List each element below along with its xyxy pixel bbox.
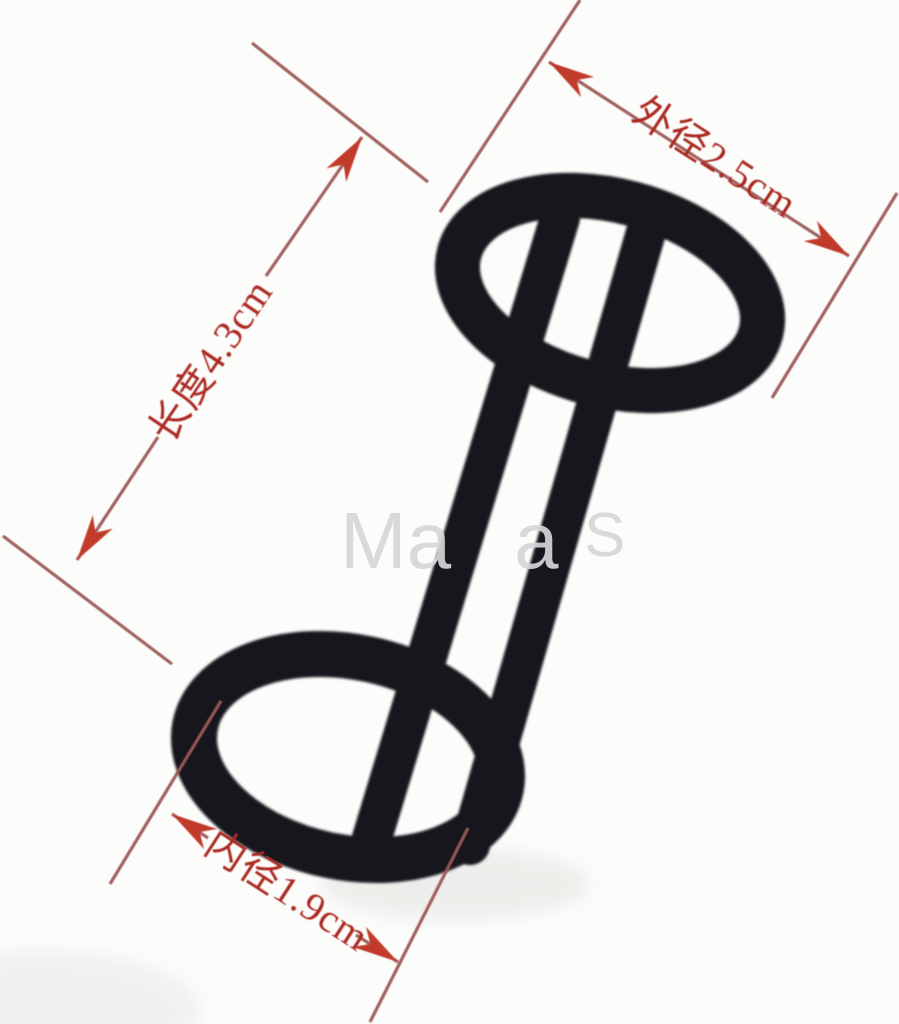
dim-arrowhead-icon: [542, 52, 594, 97]
dim-arrowhead-icon: [804, 221, 856, 266]
watermark-fragment: a: [514, 496, 559, 585]
watermark-fragment: Ma: [340, 496, 452, 585]
watermark-fragment: S: [584, 501, 625, 570]
dim-arrowhead-icon: [326, 130, 372, 182]
dimension-label-length: 长度4.3cm: [140, 271, 281, 450]
product-annotated-photo: Ma a S 外径2.5cm: [0, 0, 899, 1024]
product-object: [175, 164, 785, 887]
product-image: Ma a S 外径2.5cm: [0, 0, 899, 1024]
dim-arrowhead-icon: [67, 515, 113, 567]
extension-line: [3, 536, 172, 664]
corner-shade: [0, 950, 200, 1024]
extension-line: [772, 193, 897, 398]
